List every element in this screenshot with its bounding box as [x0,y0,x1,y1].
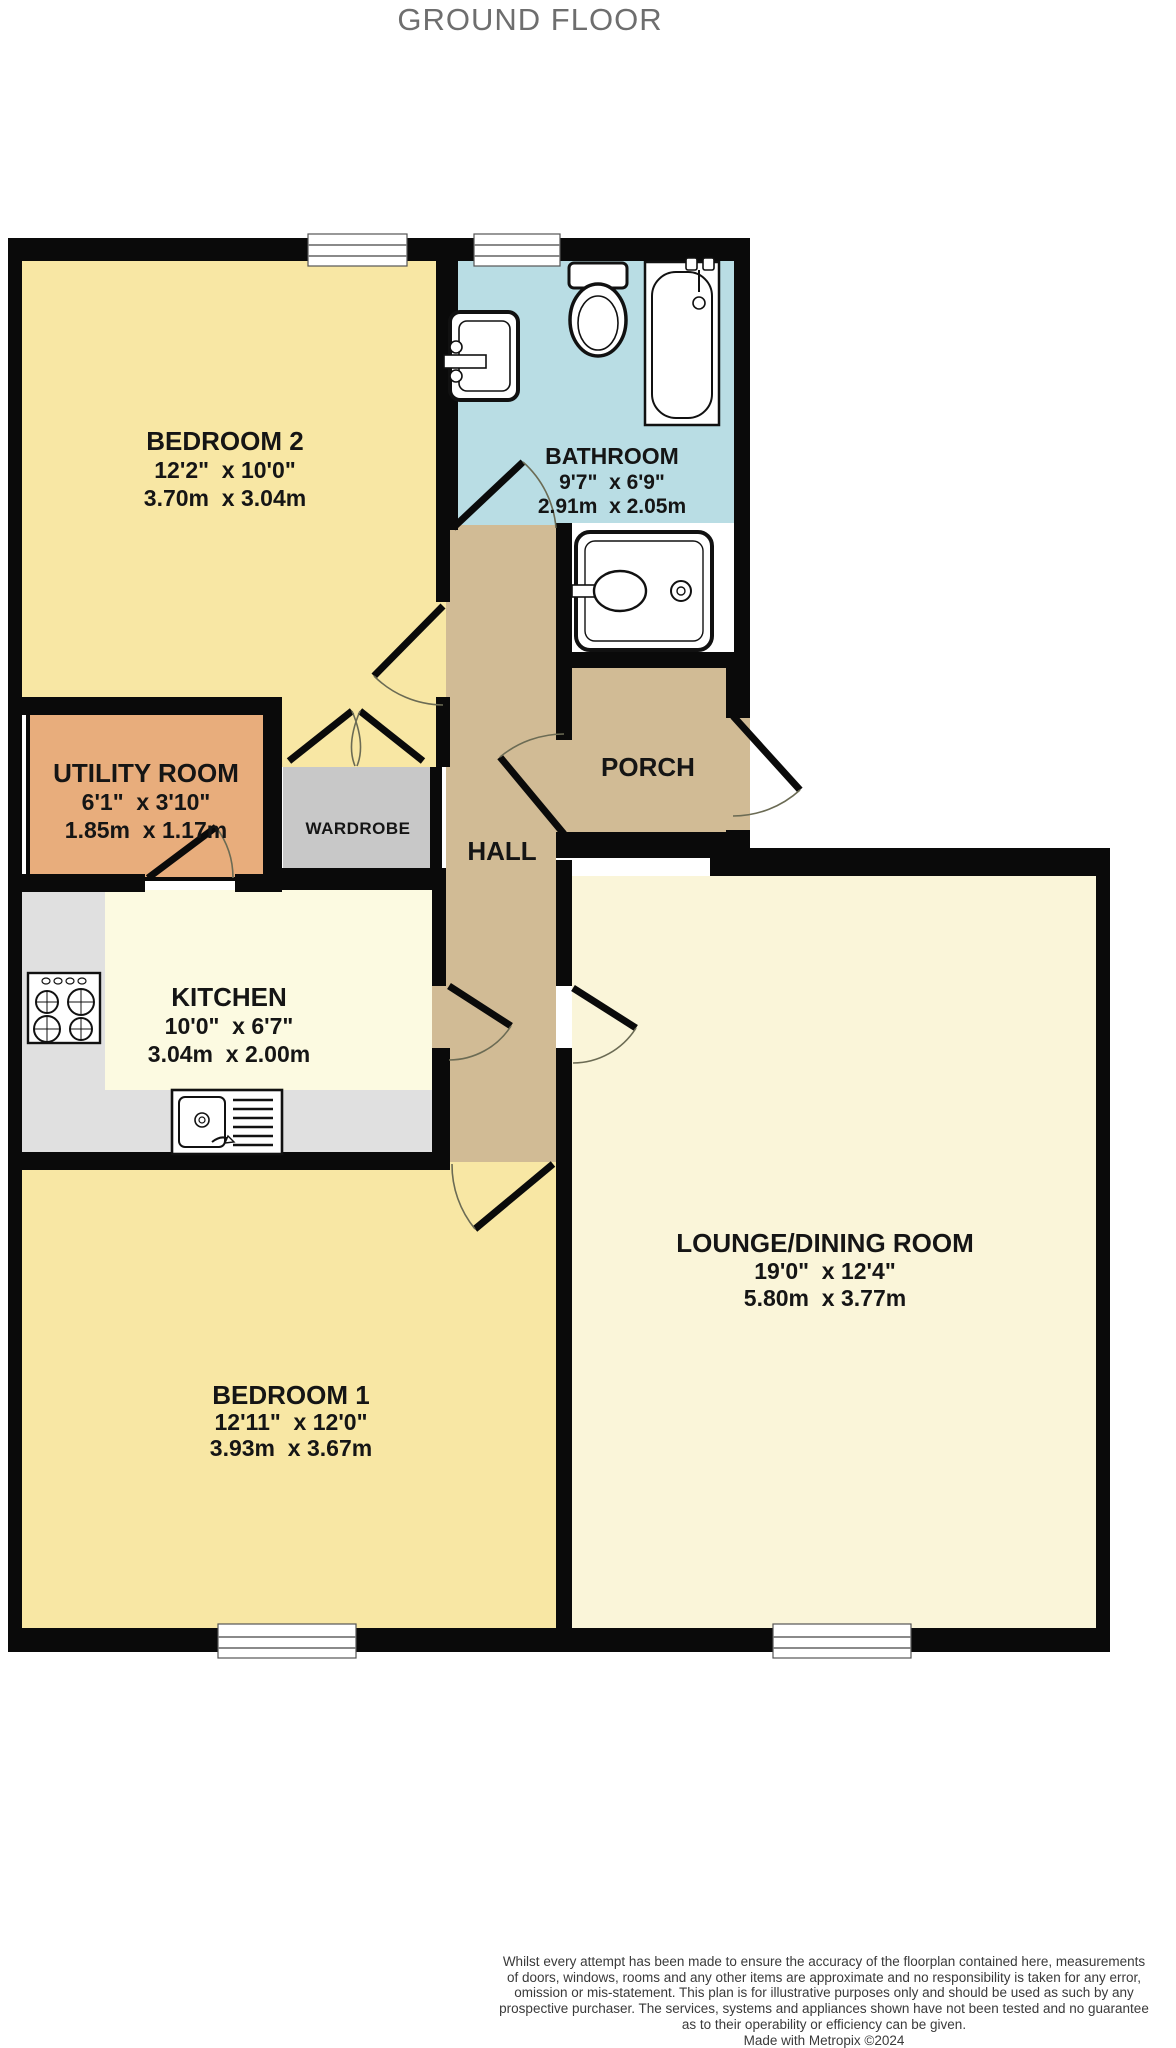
stove-icon [28,973,100,1043]
room-dim-imperial: 19'0" x 12'4" [754,1258,895,1284]
label-bedroom-1: BEDROOM 1 12'11" x 12'0" 3.93m x 3.67m [210,1380,372,1461]
wall [235,874,282,892]
disclaimer: Whilst every attempt has been made to en… [470,1954,1176,2048]
wall [556,663,572,740]
wall [8,697,282,715]
wall [568,652,734,668]
room-dim-imperial: 6'1" x 3'10" [82,789,211,815]
floorplan-drawing: BEDROOM 2 12'2" x 10'0" 3.70m x 3.04m BA… [0,0,1176,2048]
room-name: UTILITY ROOM [53,758,239,788]
window-lounge [773,1624,911,1658]
room-name: BEDROOM 1 [212,1380,369,1410]
disclaimer-line: prospective purchaser. The services, sys… [470,2001,1176,2017]
wall [556,860,572,986]
room-dim-imperial: 12'11" x 12'0" [215,1409,368,1435]
disclaimer-line: omission or mis-statement. This plan is … [470,1985,1176,2001]
kitchen-sink-icon [172,1090,282,1154]
wall [710,848,1110,876]
room-dim-metric: 3.04m x 2.00m [148,1041,310,1067]
room-name: BATHROOM [545,443,679,469]
credit-line: Made with Metropix ©2024 [470,2033,1176,2048]
room-dim-metric: 5.80m x 3.77m [744,1285,906,1311]
disclaimer-line: of doors, windows, rooms and any other i… [470,1970,1176,1986]
label-kitchen: KITCHEN 10'0" x 6'7" 3.04m x 2.00m [148,982,310,1067]
room-dim-metric: 3.70m x 3.04m [144,485,306,511]
label-bathroom: BATHROOM 9'7" x 6'9" 2.91m x 2.05m [538,443,686,518]
wall [430,767,442,868]
window-bedroom-2 [308,234,407,266]
room-dim-imperial: 10'0" x 6'7" [165,1013,294,1039]
room-name: BEDROOM 2 [146,426,303,456]
label-porch: PORCH [601,752,695,782]
bathtub-icon [645,258,719,425]
wall [8,238,22,1652]
window-bedroom-1 [218,1624,356,1658]
label-hall: HALL [467,836,536,866]
wall [1096,848,1110,1652]
wall [8,874,145,892]
room-porch [572,665,726,836]
room-dim-metric: 2.91m x 2.05m [538,495,686,518]
disclaimer-line: Whilst every attempt has been made to en… [470,1954,1176,1970]
kitchen-door-gap [432,986,446,1048]
wall [556,523,572,668]
room-wardrobe [283,767,430,868]
basin-icon [444,312,518,400]
label-wardrobe: WARDROBE [305,819,410,838]
wall [282,868,432,890]
room-dim-metric: 3.93m x 3.67m [210,1435,372,1461]
wall [8,1628,1106,1652]
shower-icon [572,532,712,650]
room-dim-metric: 1.85m x 1.17m [65,817,227,843]
wall [432,1048,450,1170]
wall [556,832,726,858]
room-name: LOUNGE/DINING ROOM [676,1228,974,1258]
disclaimer-line: as to their operability or efficiency ca… [470,2017,1176,2033]
room-name: KITCHEN [171,982,287,1012]
toilet-icon [569,263,627,356]
window-bathroom [474,234,560,266]
wall [734,238,750,652]
wall [436,697,450,767]
room-dim-imperial: 9'7" x 6'9" [559,471,665,494]
wall [432,868,446,986]
wall [556,1048,572,1628]
room-dim-imperial: 12'2" x 10'0" [154,457,295,483]
wall [263,697,282,892]
label-bedroom-2: BEDROOM 2 12'2" x 10'0" 3.70m x 3.04m [144,426,306,511]
floorplan-page: GROUND FLOOR [0,0,1176,2048]
wall [436,530,450,602]
